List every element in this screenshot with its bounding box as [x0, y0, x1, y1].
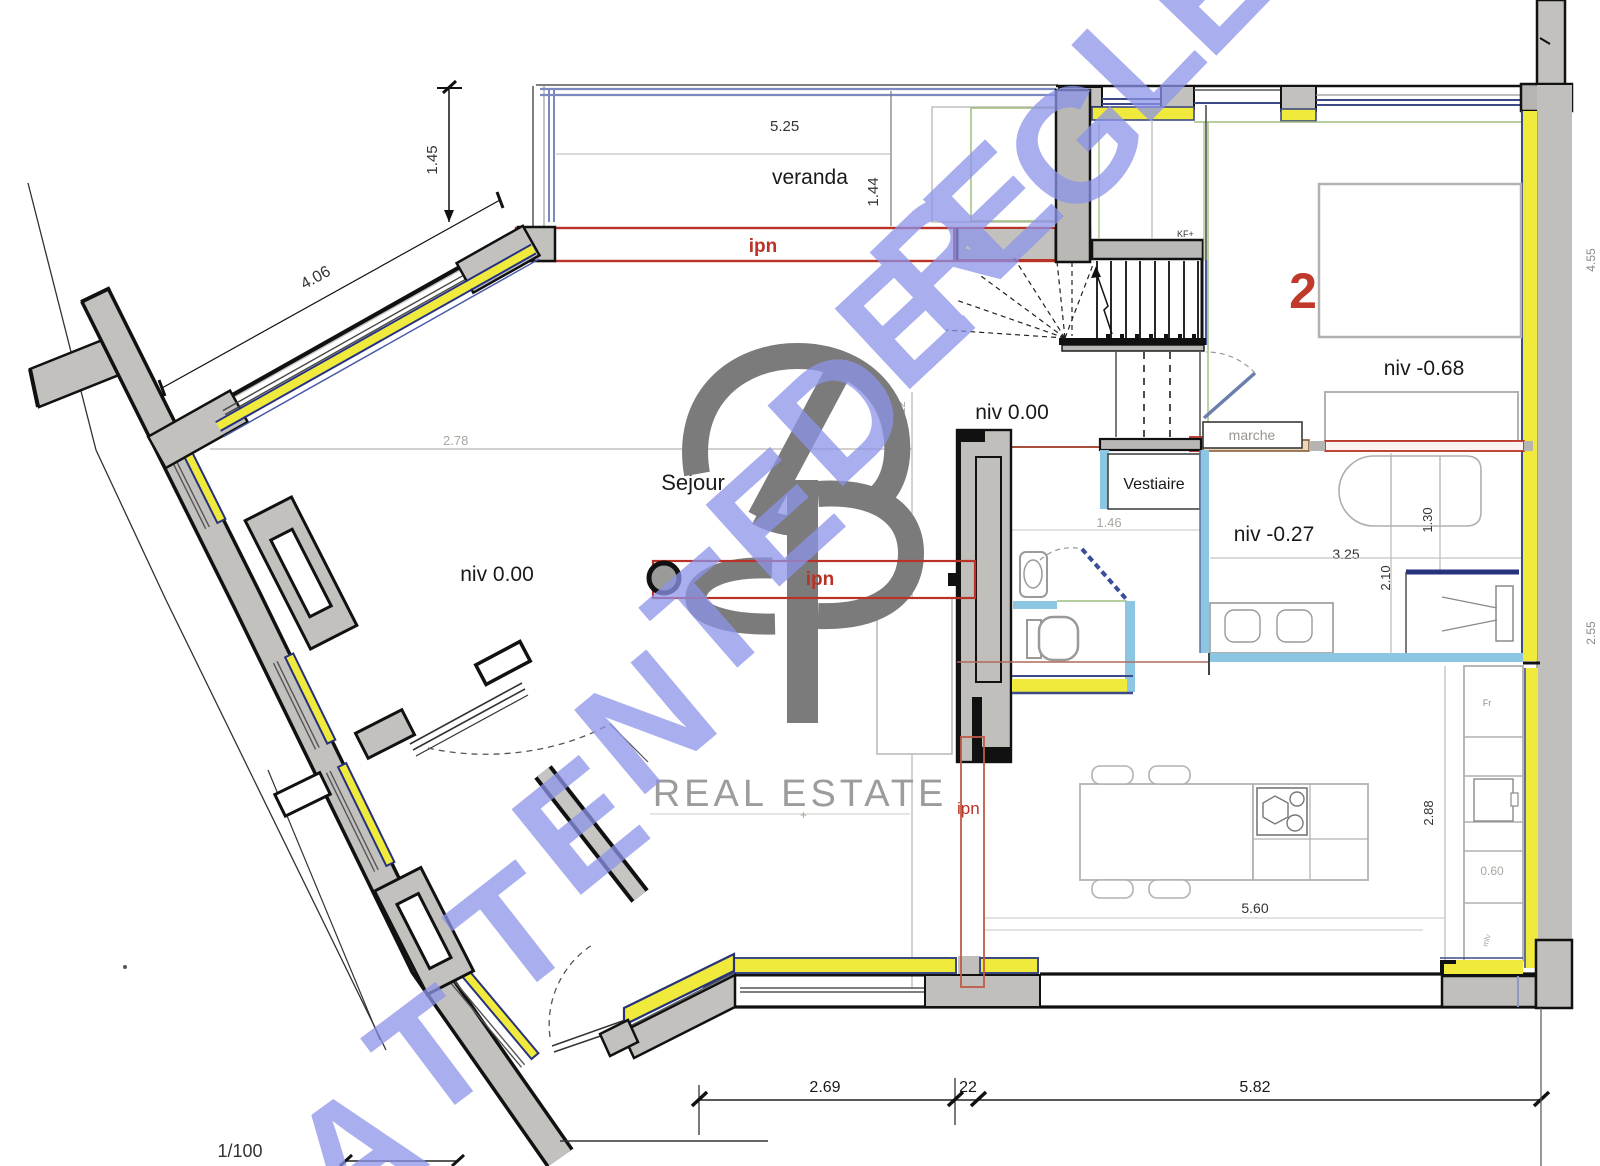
svg-text:marche: marche [1229, 427, 1276, 443]
svg-text:Vestiaire: Vestiaire [1123, 476, 1184, 493]
svg-text:1.45: 1.45 [424, 145, 441, 174]
svg-text:2.55: 2.55 [1584, 621, 1598, 645]
svg-text:ipn: ipn [749, 236, 778, 257]
svg-text:3.25: 3.25 [1332, 546, 1359, 562]
svg-text:2.88: 2.88 [1421, 800, 1436, 825]
svg-text:5.25: 5.25 [770, 118, 799, 135]
svg-text:2: 2 [1289, 263, 1317, 319]
svg-text:Fr: Fr [1483, 698, 1492, 708]
svg-text:22: 22 [959, 1079, 977, 1096]
svg-text:1.30: 1.30 [1420, 507, 1435, 532]
svg-text:niv 0.00: niv 0.00 [975, 401, 1049, 424]
svg-text:0.60: 0.60 [1480, 864, 1504, 878]
svg-text:KF+: KF+ [1177, 229, 1194, 239]
svg-text:5.60: 5.60 [1241, 900, 1268, 916]
svg-text:1.46: 1.46 [1096, 515, 1121, 530]
svg-text:2.69: 2.69 [809, 1079, 840, 1096]
svg-text:4.55: 4.55 [1584, 248, 1598, 272]
svg-text:1/100: 1/100 [217, 1141, 262, 1161]
svg-text:ipn: ipn [957, 799, 980, 818]
svg-text:niv -0.68: niv -0.68 [1384, 357, 1465, 380]
svg-text:niv -0.27: niv -0.27 [1234, 523, 1315, 546]
svg-text:veranda: veranda [772, 166, 848, 189]
svg-text:5.82: 5.82 [1239, 1079, 1270, 1096]
svg-text:2.78: 2.78 [443, 433, 468, 448]
svg-text:niv 0.00: niv 0.00 [460, 563, 534, 586]
